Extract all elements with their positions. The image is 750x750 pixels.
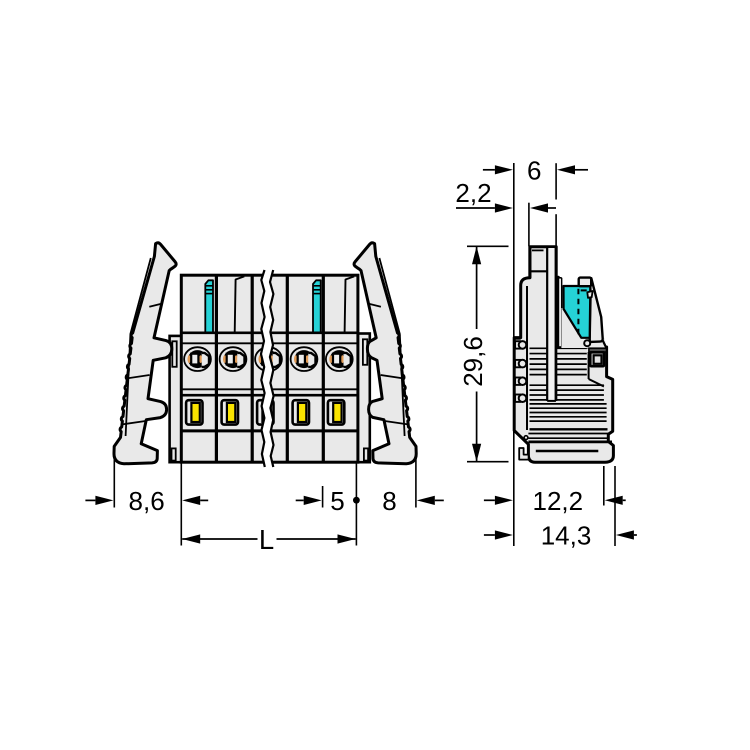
svg-text:5: 5 (330, 486, 344, 516)
svg-text:2,2: 2,2 (455, 178, 491, 208)
svg-text:L: L (259, 524, 274, 555)
svg-text:12,2: 12,2 (532, 486, 583, 516)
svg-text:8: 8 (382, 486, 396, 516)
svg-text:14,3: 14,3 (541, 521, 592, 551)
svg-text:6: 6 (527, 156, 541, 186)
svg-text:29,6: 29,6 (458, 336, 488, 387)
svg-text:8,6: 8,6 (129, 486, 165, 516)
